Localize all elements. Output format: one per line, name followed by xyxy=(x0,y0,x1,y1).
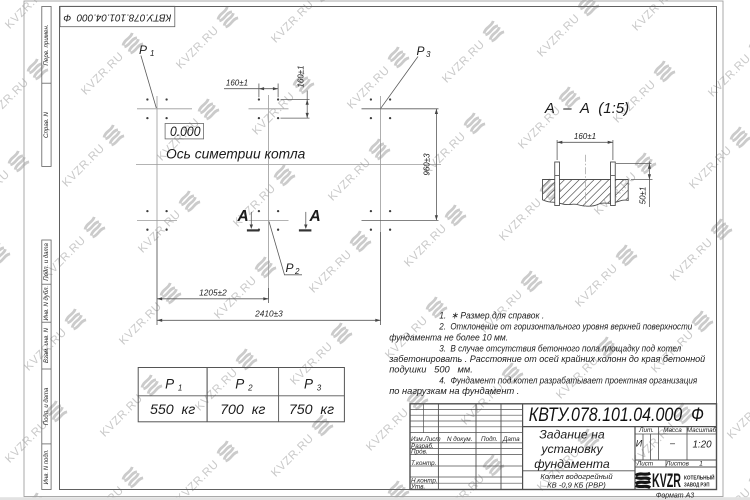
svg-text:Лит.: Лит. xyxy=(638,427,654,434)
svg-text:КОТЕЛЬНЫЙ: КОТЕЛЬНЫЙ xyxy=(684,474,715,482)
svg-text:1:20: 1:20 xyxy=(692,439,712,450)
svg-text:Подп. и дата: Подп. и дата xyxy=(44,387,50,425)
svg-text:–: – xyxy=(669,438,676,448)
svg-text:3. В случае отсутствия бетонн: 3. В случае отсутствия бетонного пола пл… xyxy=(439,343,682,353)
svg-text:KVZR: KVZR xyxy=(652,470,681,492)
svg-text:960±3: 960±3 xyxy=(423,153,432,176)
svg-text:Изм.Лист: Изм.Лист xyxy=(411,436,441,443)
svg-text:1. ∗ Размер для справок .: 1. ∗ Размер для справок . xyxy=(439,311,544,321)
svg-text:Дата: Дата xyxy=(502,436,520,443)
svg-text:1: 1 xyxy=(178,383,182,392)
svg-text:2410±3: 2410±3 xyxy=(254,309,283,319)
svg-text:50±1: 50±1 xyxy=(638,187,647,205)
svg-text:160±1: 160±1 xyxy=(226,79,248,88)
svg-text:3: 3 xyxy=(317,383,322,392)
svg-text:Утв.: Утв. xyxy=(410,484,425,491)
svg-text:Инв. N подл.: Инв. N подл. xyxy=(44,449,50,484)
svg-text:Инв. N дубл.: Инв. N дубл. xyxy=(44,286,50,321)
svg-text:Листов: Листов xyxy=(665,460,690,467)
svg-text:забетонировать . Расстояние о: забетонировать . Расстояние от осей край… xyxy=(388,354,705,364)
svg-text:550 кг: 550 кг xyxy=(150,402,195,418)
svg-text:750 кг: 750 кг xyxy=(289,402,334,418)
svg-text:Пров.: Пров. xyxy=(411,449,428,456)
svg-text:N докум.: N докум. xyxy=(447,435,472,443)
svg-text:КВ -0,9 КБ (РВР): КВ -0,9 КБ (РВР) xyxy=(547,480,606,489)
svg-text:Масса: Масса xyxy=(663,427,682,434)
svg-text:Р: Р xyxy=(165,376,174,391)
svg-text:1: 1 xyxy=(699,460,703,467)
svg-text:ЗАВОД РЭП: ЗАВОД РЭП xyxy=(684,483,710,489)
svg-text:2. Отклонение от горизонтальн: 2. Отклонение от горизонтального уровня … xyxy=(438,321,692,331)
svg-text:КВТУ.078.101.04.000 Ф: КВТУ.078.101.04.000 Ф xyxy=(63,11,171,23)
svg-text:Подп.: Подп. xyxy=(481,435,498,443)
svg-text:фундамента: фундамента xyxy=(534,457,610,471)
svg-text:2: 2 xyxy=(247,383,253,392)
svg-text:Перв. примен.: Перв. примен. xyxy=(43,24,50,65)
svg-text:P: P xyxy=(417,44,425,58)
svg-text:P: P xyxy=(286,261,294,275)
svg-text:Ось симетрии котла: Ось симетрии котла xyxy=(166,147,306,162)
svg-text:Справ. N: Справ. N xyxy=(43,112,50,138)
svg-text:1: 1 xyxy=(150,49,154,58)
svg-text:Т.контр.: Т.контр. xyxy=(411,460,436,467)
svg-text:4. Фундамент под котел разраб: 4. Фундамент под котел разрабатывает про… xyxy=(439,375,697,385)
svg-text:И: И xyxy=(636,439,643,449)
svg-text:Подп. и дата: Подп. и дата xyxy=(44,243,50,281)
svg-text:160±1: 160±1 xyxy=(574,132,596,141)
svg-text:Масштаб: Масштаб xyxy=(687,426,717,434)
svg-text:Р: Р xyxy=(235,376,244,391)
svg-text:А – А (1:5): А – А (1:5) xyxy=(544,100,629,117)
svg-text:1205±2: 1205±2 xyxy=(199,287,227,297)
svg-text:0.000: 0.000 xyxy=(170,124,201,139)
svg-text:160±1: 160±1 xyxy=(297,65,306,87)
svg-text:Задание на: Задание на xyxy=(539,428,605,442)
svg-text:Лист: Лист xyxy=(636,460,653,467)
svg-text:700 кг: 700 кг xyxy=(220,402,265,418)
svg-text:3: 3 xyxy=(426,50,431,59)
svg-text:А: А xyxy=(237,208,249,225)
svg-text:по нагрузкам на фундамент .: по нагрузкам на фундамент . xyxy=(389,386,519,396)
svg-text:КВТУ.078.101.04.000 Ф: КВТУ.078.101.04.000 Ф xyxy=(529,404,704,426)
svg-text:фундамента не более 10 мм.: фундамента не более 10 мм. xyxy=(389,333,508,343)
svg-text:Взам. инв. N: Взам. инв. N xyxy=(44,327,50,363)
svg-text:подушки 500 мм.: подушки 500 мм. xyxy=(389,365,473,375)
svg-text:А: А xyxy=(309,208,321,225)
svg-text:P: P xyxy=(139,43,147,57)
svg-text:Р: Р xyxy=(304,376,313,391)
svg-text:установку: установку xyxy=(540,442,603,456)
svg-text:Формат А3: Формат А3 xyxy=(656,492,694,499)
